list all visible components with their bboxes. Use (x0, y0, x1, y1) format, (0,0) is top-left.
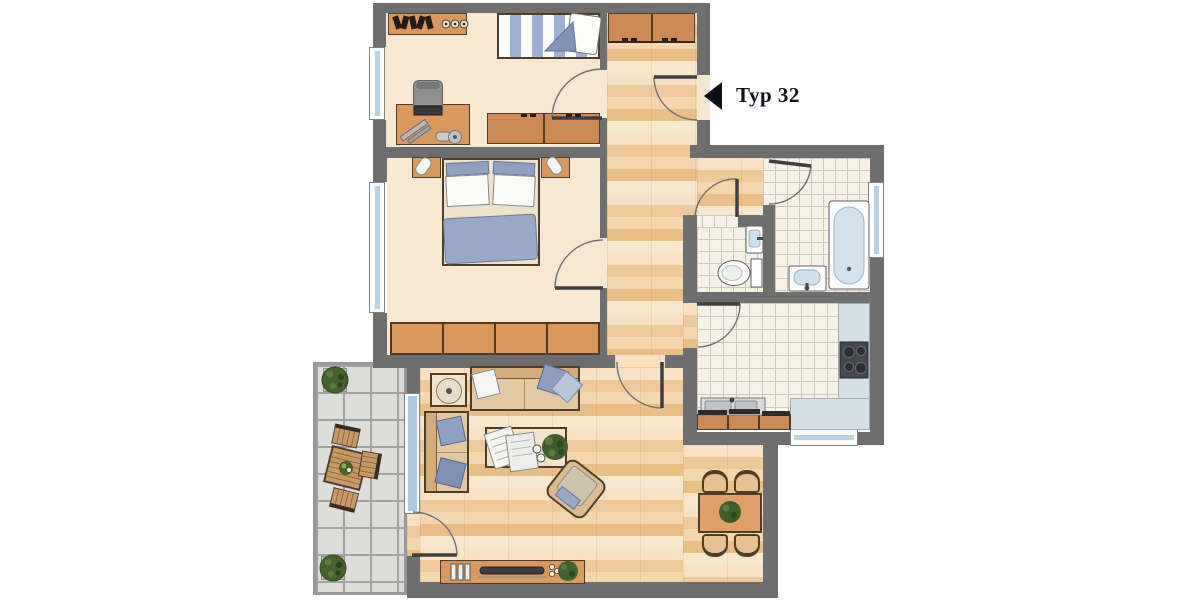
shelf-knobs (442, 20, 468, 28)
door-arcs (413, 69, 811, 555)
shelf-books (392, 15, 433, 29)
balcony-plant (322, 367, 348, 393)
burner (856, 363, 867, 374)
keyboard (414, 106, 442, 115)
stereo-bar (480, 567, 544, 574)
toilet (718, 259, 762, 287)
wc-sink (746, 226, 763, 253)
burner (845, 363, 854, 372)
door-arc-entrance (654, 77, 697, 120)
door-leaves (412, 77, 811, 555)
coaster (533, 445, 541, 453)
coaster (537, 454, 545, 462)
faucet (757, 237, 763, 240)
balcony-plant (320, 555, 346, 581)
dining-plant (719, 501, 741, 523)
bathtub-drain (847, 267, 851, 271)
desk-lamp (436, 131, 462, 144)
nightstand-lamp (414, 155, 564, 177)
bathroom-sink (789, 266, 826, 291)
door-arc-kitchen (698, 304, 740, 347)
balcony-table-plant (339, 461, 353, 475)
sideboard-books (451, 564, 470, 580)
door-arc-living (617, 362, 662, 408)
burner (857, 347, 866, 356)
magazine (506, 432, 539, 472)
entrance-arrow-icon (704, 82, 722, 110)
sideboard-deco (550, 565, 560, 577)
door-arc-bathroom (769, 166, 811, 204)
stove (840, 342, 868, 378)
sideboard-plant (558, 561, 578, 581)
floor-plan: Typ 32 (0, 0, 1200, 600)
door-arc-children (552, 69, 602, 118)
faucet (805, 286, 810, 291)
desk-ruler (400, 120, 431, 146)
plan-overlay (0, 0, 1200, 600)
burner (844, 347, 855, 358)
door-arc-wc (695, 179, 737, 216)
bed-blanket-fold (545, 22, 576, 51)
door-arc-balcony (413, 512, 457, 555)
bathtub (829, 201, 869, 289)
coffee-table-plant (542, 434, 568, 460)
plan-type-label: Typ 32 (736, 83, 800, 108)
faucet (730, 398, 735, 403)
door-arc-bedroom (555, 240, 603, 288)
door-leaf-bathroom (769, 161, 811, 166)
